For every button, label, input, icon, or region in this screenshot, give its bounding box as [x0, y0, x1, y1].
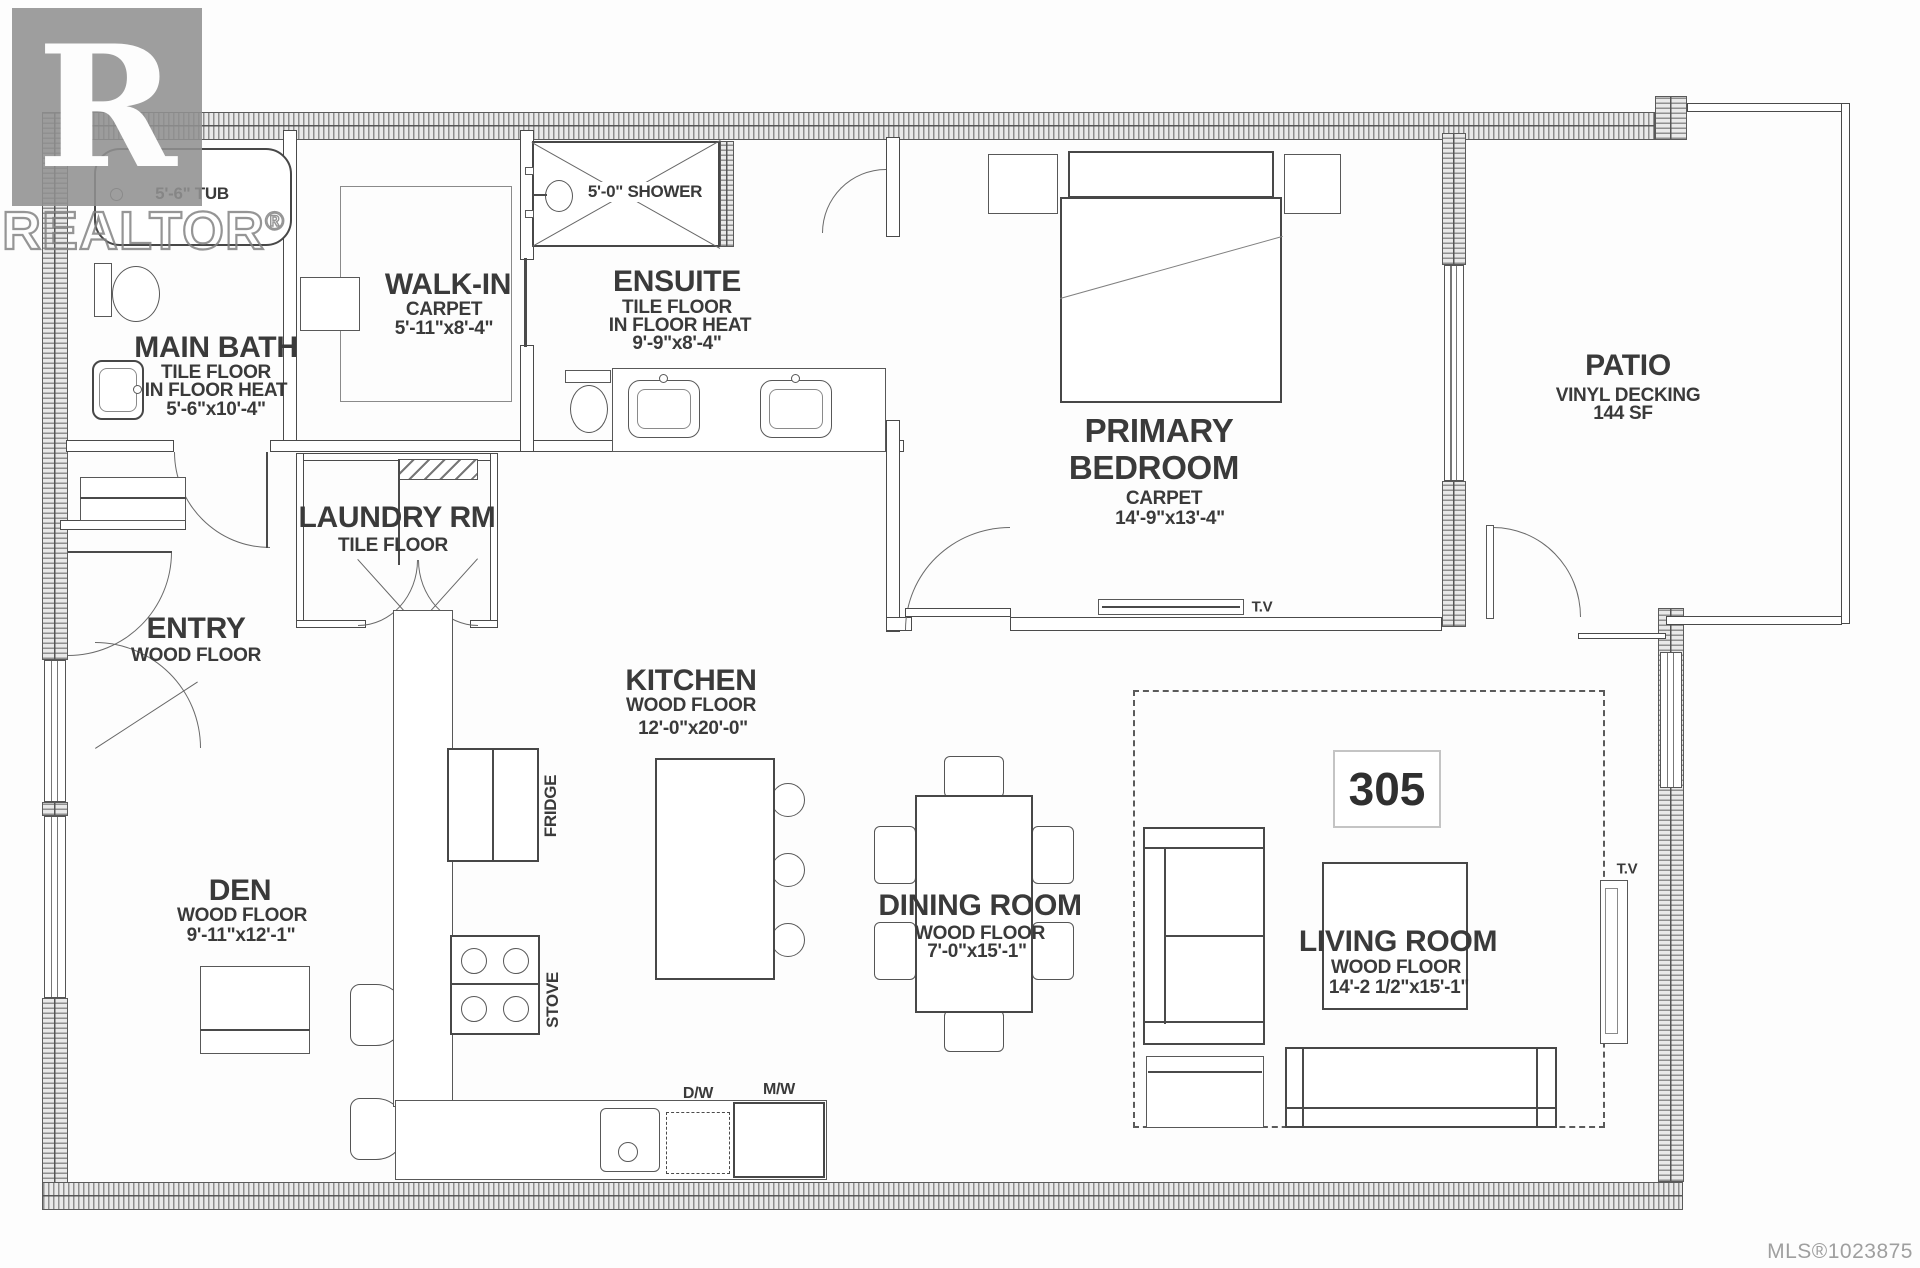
- dishwasher-label: D/W: [683, 1085, 713, 1103]
- mainbath-toilet-tank: [94, 263, 112, 317]
- entry-door-leaf: [68, 551, 172, 553]
- wall-patio-corridor: [1578, 633, 1666, 639]
- laundry-floor: TILE FLOOR: [338, 535, 448, 557]
- ensuite-faucet-1: [659, 374, 668, 383]
- kitchen-sink-drain: [618, 1142, 638, 1162]
- wall-entry-closet: [60, 520, 186, 530]
- wall-mainbath-bottom: [66, 440, 174, 452]
- kitchen-floor: WOOD FLOOR: [626, 695, 756, 717]
- living-tv-console-inner: [1605, 888, 1618, 1034]
- shower-label: 5'-0" SHOWER: [584, 182, 706, 202]
- wall-bedroom-patio-upper: [1442, 133, 1466, 265]
- den-dims: 9'-11"x12'-1": [187, 925, 296, 947]
- bedroom-floor: CARPET: [1126, 488, 1202, 510]
- ensuite-sink-1-basin: [637, 389, 691, 429]
- realtor-logo-letter: R: [37, 23, 177, 191]
- mainbath-door-leaf: [266, 452, 268, 548]
- entry-name: ENTRY: [146, 612, 245, 646]
- wall-bottom: [42, 1182, 1683, 1210]
- patio-wall-right: [1841, 103, 1850, 624]
- shower-wall-edge: [720, 141, 734, 247]
- dining-dims: 7'-0"x15'-1": [927, 941, 1027, 963]
- window-bedroom-patio: [1444, 265, 1464, 481]
- mainbath-dims: 5'-6"x10'-4": [166, 399, 266, 421]
- wall-bedroom-patio-lower: [1442, 481, 1466, 627]
- island-stool-3: [771, 923, 805, 957]
- mls-number: MLS®1023875: [1767, 1240, 1913, 1264]
- walkin-dims: 5'-11"x8'-4": [395, 318, 493, 340]
- registered-mark-icon: ®: [265, 206, 285, 236]
- microwave: [733, 1102, 825, 1178]
- realtor-logo-icon: R: [12, 8, 202, 206]
- den-name: DEN: [209, 874, 271, 908]
- armchair: [1146, 1056, 1264, 1128]
- nightstand-right: [1284, 154, 1341, 214]
- dining-chair-right-1: [1032, 826, 1074, 884]
- living-name: LIVING ROOM: [1299, 925, 1497, 959]
- den-floor: WOOD FLOOR: [177, 905, 307, 927]
- wall-hall-bedroom-lower: [886, 420, 900, 632]
- window-left-1: [44, 660, 66, 802]
- stove-label: STOVE: [543, 972, 563, 1028]
- sofa-arm-left: [1302, 1049, 1304, 1126]
- island-stool-2: [771, 853, 805, 887]
- mainbath-sink-basin: [99, 368, 137, 412]
- bedroom-dims: 14'-9"x13'-4": [1115, 508, 1225, 530]
- stove-burner-3: [461, 996, 487, 1022]
- loveseat-arm-bottom: [1145, 1021, 1263, 1023]
- stove-burner-1: [461, 948, 487, 974]
- den-desk-line: [200, 1029, 310, 1031]
- unit-number-box: 305: [1333, 750, 1441, 828]
- shower-head: [545, 180, 573, 212]
- ensuite-toilet-bowl: [570, 385, 608, 433]
- realtor-watermark: REALTOR®: [2, 200, 285, 262]
- laundry-wall-right: [490, 453, 498, 628]
- shower-valve-2: [525, 210, 534, 218]
- loveseat-arm-top: [1145, 847, 1263, 849]
- wall-walkin-ensuite-lower: [520, 345, 534, 452]
- nightstand-left: [988, 154, 1058, 214]
- window-right: [1660, 652, 1682, 788]
- bed-headboard: [1068, 151, 1274, 198]
- wall-bedroom-bottom: [1010, 617, 1442, 631]
- ensuite-dims: 9'-9"x8'-4": [632, 333, 721, 355]
- fridge-door-line: [492, 750, 494, 860]
- laundry-name: LAUNDRY RM: [299, 501, 496, 535]
- mainbath-faucet: [133, 385, 142, 394]
- ensuite-faucet-2: [791, 374, 800, 383]
- kitchen-sink: [600, 1108, 660, 1172]
- stove-burner-2: [503, 948, 529, 974]
- fridge-label: FRIDGE: [541, 775, 561, 837]
- den-desk: [200, 966, 310, 1054]
- bedroom-tv-label: T.V: [1252, 599, 1273, 616]
- ensuite-sink-2-basin: [769, 389, 823, 429]
- patio-name: PATIO: [1585, 349, 1671, 383]
- unit-number: 305: [1349, 762, 1426, 816]
- ensuite-name: ENSUITE: [613, 265, 741, 299]
- bed-mattress: [1060, 197, 1282, 403]
- ensuite-toilet-tank: [565, 370, 611, 383]
- wall-top-right-corner: [1655, 96, 1687, 140]
- dining-chair-left-2: [874, 922, 916, 980]
- entry-floor: WOOD FLOOR: [131, 645, 261, 667]
- microwave-label: M/W: [763, 1081, 795, 1099]
- kitchen-dims: 12'-0"x20'-0": [638, 718, 748, 740]
- bedroom-name-2: BEDROOM: [1069, 449, 1239, 487]
- walkin-shelf: [300, 277, 360, 331]
- patio-wall-bottom: [1666, 616, 1842, 625]
- entry-closet-shelf: [80, 497, 186, 499]
- sofa-back-line: [1287, 1107, 1555, 1109]
- loveseat-cushion-line: [1166, 935, 1263, 937]
- window-left-2: [44, 816, 66, 998]
- walkin-door-leaf: [524, 258, 527, 347]
- mainbath-toilet-bowl: [112, 266, 160, 322]
- wall-ensuite-bedroom-upper: [886, 137, 900, 237]
- floor-plan: 305 5'-6" TUB 5'-0" SHOWER MAIN BATH TIL…: [0, 0, 1920, 1268]
- dining-name: DINING ROOM: [878, 889, 1081, 923]
- sofa-arm-right: [1536, 1049, 1538, 1126]
- armchair-line: [1148, 1071, 1262, 1073]
- patio-door-arc: [1493, 527, 1581, 617]
- dining-chair-top: [944, 756, 1004, 798]
- dishwasher: [666, 1112, 730, 1174]
- stove-burner-4: [503, 996, 529, 1022]
- bedroom-door-leaf: [905, 608, 1011, 617]
- laundry-shelf-hatch: [398, 459, 478, 480]
- patio-door-leaf: [1486, 525, 1494, 619]
- living-floor: WOOD FLOOR: [1331, 957, 1461, 979]
- kitchen-name: KITCHEN: [625, 664, 756, 698]
- wall-left-lower: [42, 998, 68, 1210]
- ensuite-door-arc: [822, 169, 886, 233]
- laundry-wall-bottom-left: [296, 620, 366, 628]
- mainbath-name: MAIN BATH: [134, 331, 297, 365]
- island-stool-1: [771, 783, 805, 817]
- wall-left-mid: [42, 802, 68, 816]
- dining-chair-bottom: [944, 1010, 1004, 1052]
- stove-mid-line: [452, 983, 538, 985]
- living-tv-label: T.V: [1617, 861, 1638, 878]
- kitchen-island: [655, 758, 775, 980]
- living-dims: 14'-2 1/2"x15'-1": [1329, 977, 1469, 999]
- sofa: [1285, 1047, 1557, 1128]
- walkin-name: WALK-IN: [385, 268, 511, 302]
- stove: [450, 935, 540, 1035]
- entry-closet: [80, 477, 186, 521]
- kitchen-counter-left: [393, 610, 453, 1107]
- realtor-watermark-text: REALTOR: [2, 201, 265, 261]
- dining-chair-left-1: [874, 826, 916, 884]
- laundry-wall-left: [296, 453, 304, 628]
- patio-wall-top: [1687, 103, 1850, 112]
- mainbath-door-arc: [174, 452, 270, 548]
- patio-area: 144 SF: [1593, 403, 1652, 425]
- bedroom-tv-console-line: [1102, 606, 1240, 608]
- shower-arm: [533, 194, 547, 196]
- bedroom-name-1: PRIMARY: [1085, 412, 1234, 450]
- shower-valve-1: [525, 167, 534, 175]
